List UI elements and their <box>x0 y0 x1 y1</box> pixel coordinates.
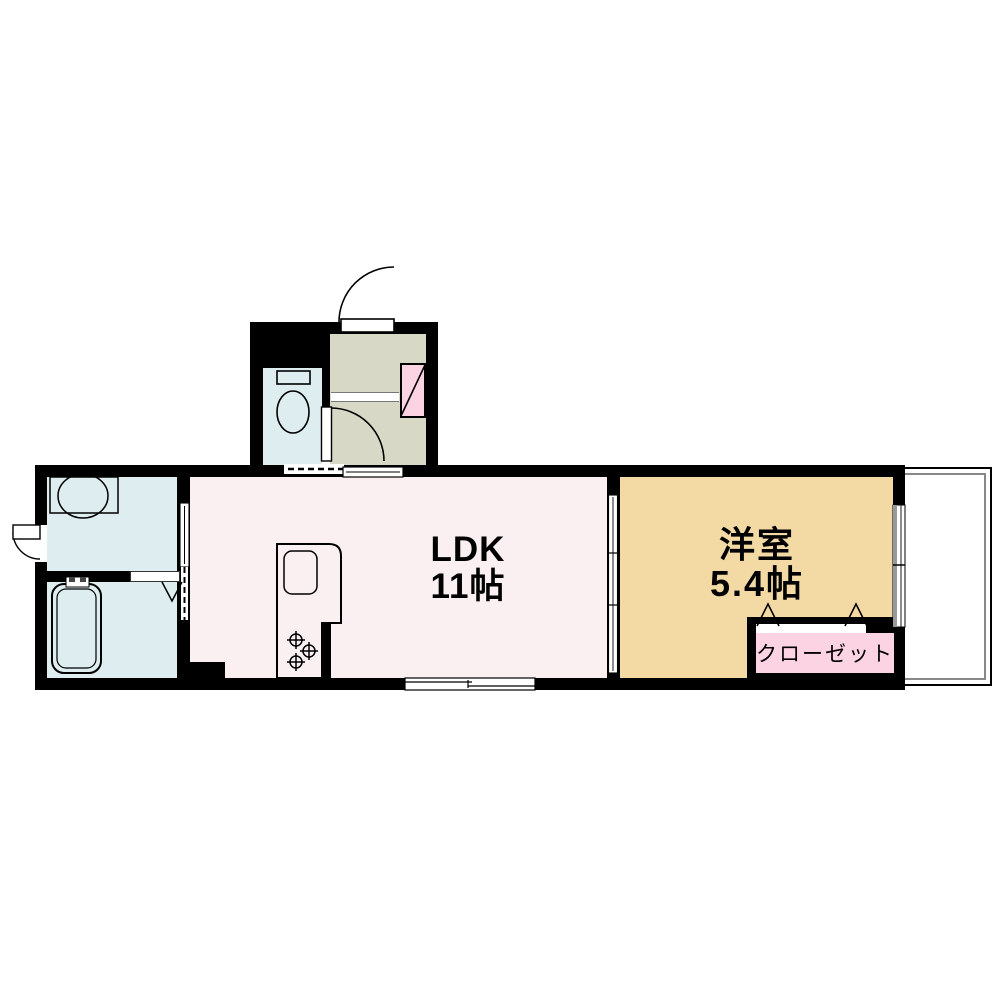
fixtures-overlay <box>0 0 1000 1000</box>
ldk-room-area: 11帖 <box>388 568 548 605</box>
western-room-label: 洋室 5.4帖 <box>677 525 837 603</box>
closet-folding-door-icon <box>757 604 867 626</box>
hall-ldk-sliding-door-icon <box>284 464 403 477</box>
bath-folding-door-icon <box>162 582 182 601</box>
hall-door-icon <box>322 407 385 461</box>
western-room-name: 洋室 <box>677 525 837 564</box>
side-door-icon <box>13 525 40 559</box>
entrance-door-icon <box>339 267 394 332</box>
balcony-window-icon <box>893 505 905 627</box>
bathtub-fixture-icon <box>52 577 101 673</box>
toilet-fixture-icon <box>277 371 310 433</box>
floorplan-canvas: クローゼット <box>0 0 1000 1000</box>
shoe-cabinet-diagonal <box>401 365 425 416</box>
western-room-area: 5.4帖 <box>677 564 837 603</box>
washroom-sliding-door-icon <box>180 503 189 620</box>
ldk-western-sliding-door-icon <box>609 495 618 673</box>
ldk-room-label: LDK 11帖 <box>388 531 548 605</box>
washbasin-fixture-icon <box>50 474 118 518</box>
ldk-room-name: LDK <box>388 531 548 568</box>
kitchen-counter-icon <box>277 544 341 678</box>
ldk-window-icon <box>405 678 535 690</box>
